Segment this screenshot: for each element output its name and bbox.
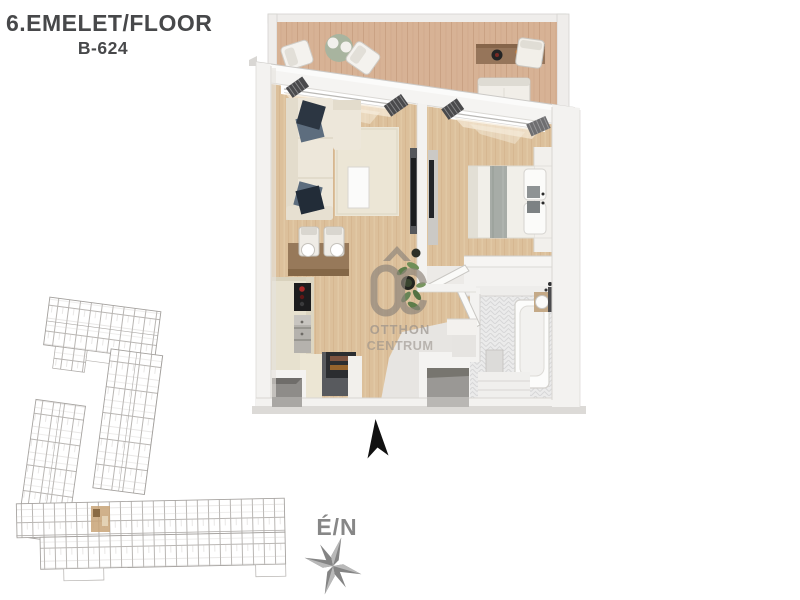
svg-text:6.EMELET/FLOOR: 6.EMELET/FLOOR xyxy=(6,10,212,36)
svg-text:B-624: B-624 xyxy=(78,38,128,58)
svg-text:OTTHON: OTTHON xyxy=(370,322,431,337)
svg-text:CENTRUM: CENTRUM xyxy=(367,338,434,353)
svg-text:É/N: É/N xyxy=(316,513,357,540)
